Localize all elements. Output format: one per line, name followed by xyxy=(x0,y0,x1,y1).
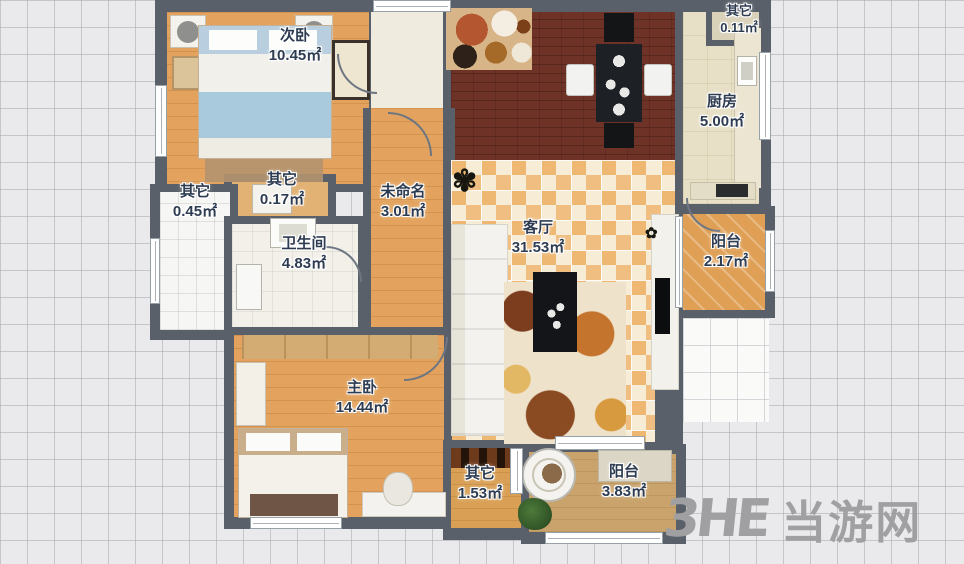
watermark-logo: 3HE xyxy=(661,489,771,549)
tv xyxy=(655,278,670,334)
kitchen-stove xyxy=(716,184,748,197)
label-kitchen: 厨房 5.00㎡ xyxy=(682,92,762,132)
wall-stub xyxy=(655,388,683,454)
label-balcony-bottom: 阳台 3.83㎡ xyxy=(578,462,670,502)
watermark-site-name: 当游网 xyxy=(781,486,922,551)
room-area: 0.11㎡ xyxy=(700,19,778,36)
outside-tiled-area xyxy=(683,318,769,422)
window xyxy=(155,85,167,157)
room-area: 2.17㎡ xyxy=(682,252,770,272)
floor-plan: ✾ ✿ 次卧 10.45㎡ 其它 0.11㎡ 厨房 5.00㎡ 其它 0.45㎡ xyxy=(0,0,964,564)
label-balcony-right: 阳台 2.17㎡ xyxy=(682,232,770,272)
watermark: 3HE 当游网 xyxy=(664,486,922,551)
closet xyxy=(236,362,266,426)
room-name: 次卧 xyxy=(235,26,355,46)
window xyxy=(545,532,663,544)
room-area: 14.44㎡ xyxy=(302,398,422,418)
bedroom-rug xyxy=(250,494,338,516)
label-other-bottom: 其它 1.53㎡ xyxy=(436,464,524,504)
dining-rug xyxy=(446,8,532,70)
dining-chair xyxy=(566,64,594,96)
room-area: 0.17㎡ xyxy=(226,190,338,210)
desk-chair xyxy=(383,472,413,506)
window xyxy=(150,238,160,304)
room-name: 厨房 xyxy=(682,92,762,112)
room-area: 10.45㎡ xyxy=(235,46,355,66)
dining-chair xyxy=(644,64,672,96)
wall-stub xyxy=(443,108,451,168)
label-unnamed: 未命名 3.01㎡ xyxy=(348,182,458,222)
room-name: 主卧 xyxy=(302,378,422,398)
room-area: 31.53㎡ xyxy=(478,238,598,258)
room-name: 阳台 xyxy=(578,462,670,482)
room-name: 其它 xyxy=(226,170,338,190)
window xyxy=(373,0,451,12)
coffee-table xyxy=(533,272,577,352)
room-name: 未命名 xyxy=(348,182,458,202)
label-other-top-right: 其它 0.11㎡ xyxy=(700,2,778,36)
label-master-bedroom: 主卧 14.44㎡ xyxy=(302,378,422,418)
room-name: 其它 xyxy=(700,2,778,19)
room-area: 1.53㎡ xyxy=(436,484,524,504)
sideboard xyxy=(604,123,634,148)
washing-machine xyxy=(522,448,576,502)
sliding-door xyxy=(555,436,645,450)
room-area: 3.83㎡ xyxy=(578,482,670,502)
label-secondary-bedroom: 次卧 10.45㎡ xyxy=(235,26,355,66)
room-name: 卫生间 xyxy=(248,234,360,254)
dining-table xyxy=(596,44,642,122)
room-name: 其它 xyxy=(436,464,524,484)
room-name: 阳台 xyxy=(682,232,770,252)
room-area: 4.83㎡ xyxy=(248,254,360,274)
label-other-closet: 其它 0.17㎡ xyxy=(226,170,338,210)
room-area: 3.01㎡ xyxy=(348,202,458,222)
window xyxy=(250,517,342,529)
plant-icon: ✿ xyxy=(645,224,658,242)
room-name: 客厅 xyxy=(478,218,598,238)
sideboard xyxy=(604,13,634,42)
kitchen-sink xyxy=(737,56,757,86)
label-living: 客厅 31.53㎡ xyxy=(478,218,598,258)
room-area: 5.00㎡ xyxy=(682,112,762,132)
label-bathroom: 卫生间 4.83㎡ xyxy=(248,234,360,274)
